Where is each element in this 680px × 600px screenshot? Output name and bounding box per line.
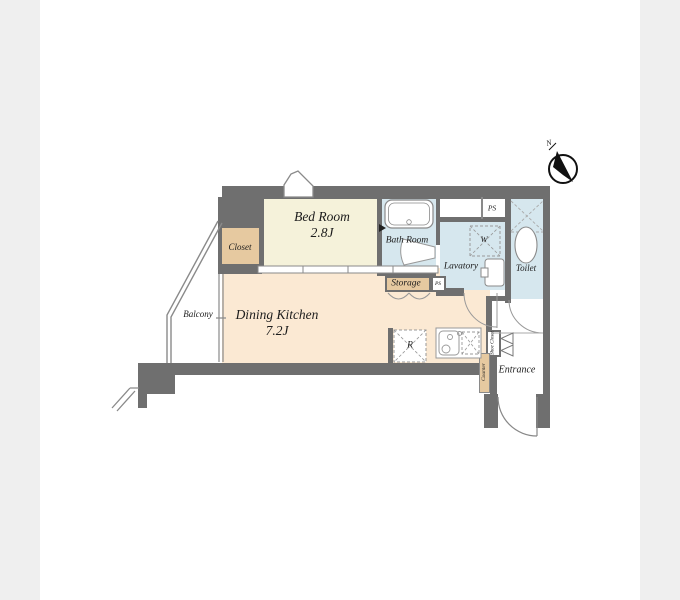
ps-lower-label: PS xyxy=(435,281,441,287)
wall-closet-bedroom xyxy=(259,228,264,268)
ps-upper-label: PS xyxy=(488,205,496,214)
bedroom-size-label: 2.8J xyxy=(311,225,334,241)
wall-closet-bottom xyxy=(218,264,262,274)
wall-closet-left xyxy=(218,228,222,268)
wall-bottom-left-stub xyxy=(138,392,147,408)
wall-entrance-right-stub xyxy=(536,394,550,428)
lavatory-label: Lavatory xyxy=(444,262,478,273)
wall-hall-left xyxy=(486,296,492,333)
wall-bottom-exterior xyxy=(166,363,492,375)
bathroom-label: Bath Room xyxy=(386,236,428,247)
wall-entrance-left-stub xyxy=(484,394,498,428)
counter-label: Counter xyxy=(481,363,487,381)
storage-label: Storage xyxy=(391,279,421,290)
room-bathroom-floor xyxy=(381,199,436,270)
room-toilet-floor xyxy=(511,197,543,300)
refrigerator-label: R xyxy=(407,341,413,352)
wall-lavatory-top xyxy=(436,217,505,222)
floor-plan-page: Bed Room 2.8J Dining Kitchen 7.2J Closet… xyxy=(0,0,680,600)
shoe-closet-label: Shoe Closet xyxy=(490,330,496,356)
room-lavatory-floor xyxy=(440,220,505,290)
bedroom-label: Bed Room xyxy=(294,209,350,225)
dining-kitchen-size-label: 7.2J xyxy=(266,323,289,339)
entrance-label: Entrance xyxy=(499,364,536,376)
wall-top xyxy=(222,186,550,199)
wall-lavatory-toilet xyxy=(505,197,511,303)
wall-bathroom-bottom xyxy=(377,268,436,276)
wall-right-exterior xyxy=(543,190,550,402)
balcony-label: Balcony xyxy=(183,309,213,319)
closet-label: Closet xyxy=(228,242,251,252)
wall-bottom-left-block xyxy=(138,363,175,394)
wall-ps-divider xyxy=(481,197,483,219)
wall-bathroom-left xyxy=(377,197,382,268)
wall-column-block xyxy=(218,197,264,228)
wall-dk-entrance xyxy=(490,355,497,396)
wall-hall-top xyxy=(492,296,510,301)
dining-kitchen-label: Dining Kitchen xyxy=(236,307,319,323)
toilet-label: Toilet xyxy=(516,263,536,273)
washing-machine-label: W xyxy=(480,235,487,245)
wall-kitchen-stub xyxy=(388,328,393,363)
